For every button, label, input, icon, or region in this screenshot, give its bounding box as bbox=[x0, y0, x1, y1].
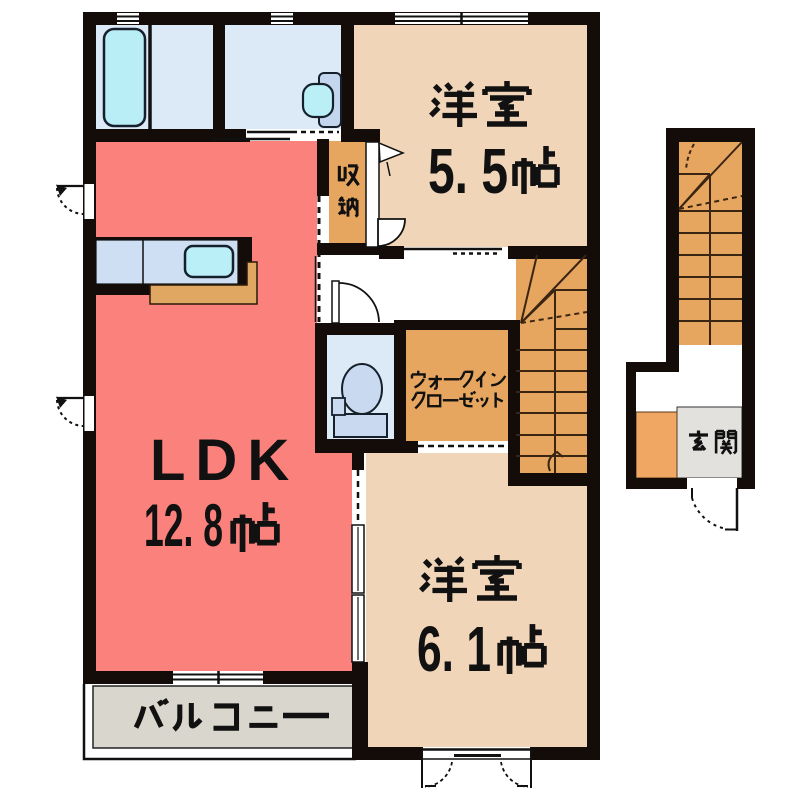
svg-text:6. 1: 6. 1 bbox=[417, 613, 491, 685]
svg-text:12. 8: 12. 8 bbox=[144, 492, 223, 559]
svg-text:5. 5: 5. 5 bbox=[428, 135, 508, 207]
svg-text:LDK: LDK bbox=[150, 428, 299, 493]
